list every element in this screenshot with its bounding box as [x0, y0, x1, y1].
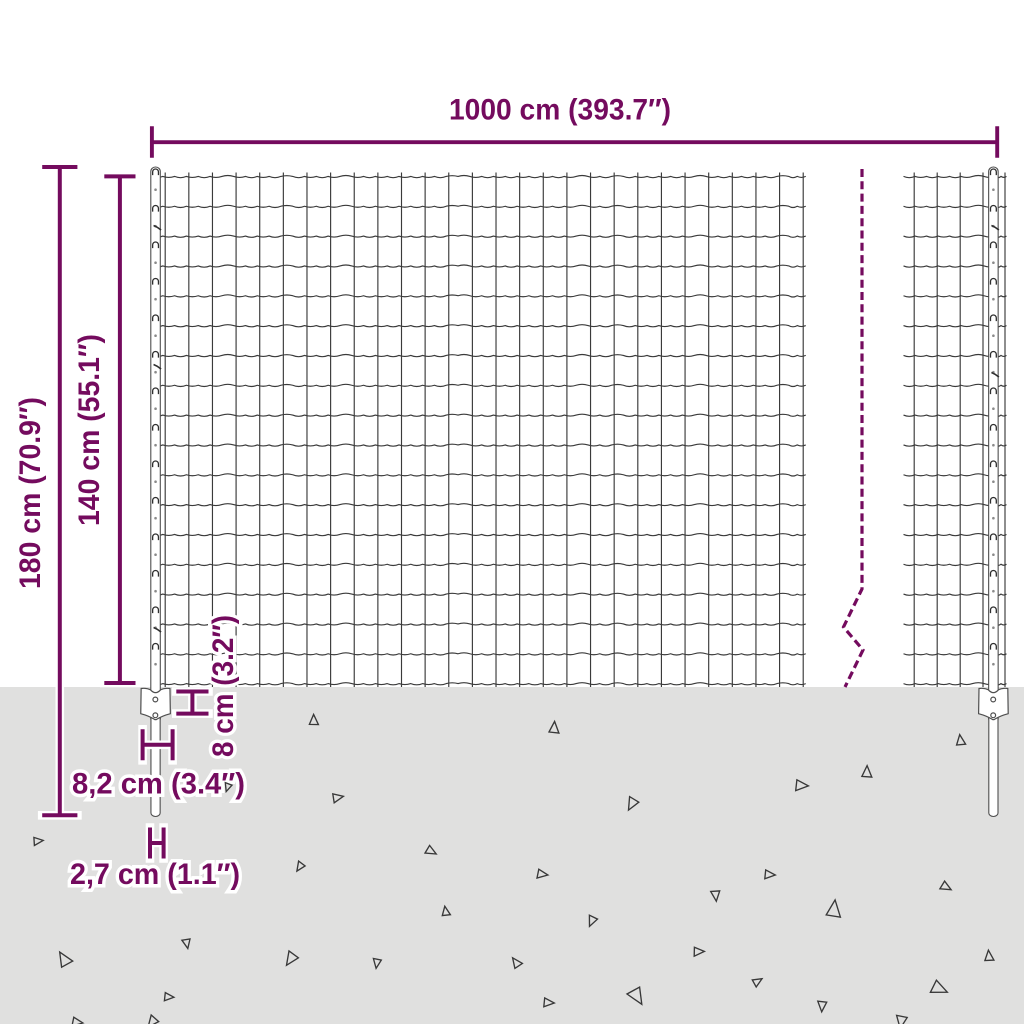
svg-text:1000 cm (393.7″): 1000 cm (393.7″) [449, 94, 671, 127]
svg-text:8 cm (3.2″): 8 cm (3.2″) [207, 615, 240, 757]
svg-text:8,2 cm (3.4″): 8,2 cm (3.4″) [72, 768, 245, 801]
svg-text:180 cm (70.9″): 180 cm (70.9″) [14, 397, 47, 589]
svg-text:140 cm (55.1″): 140 cm (55.1″) [73, 334, 106, 526]
svg-text:2,7 cm (1.1″): 2,7 cm (1.1″) [70, 858, 240, 891]
